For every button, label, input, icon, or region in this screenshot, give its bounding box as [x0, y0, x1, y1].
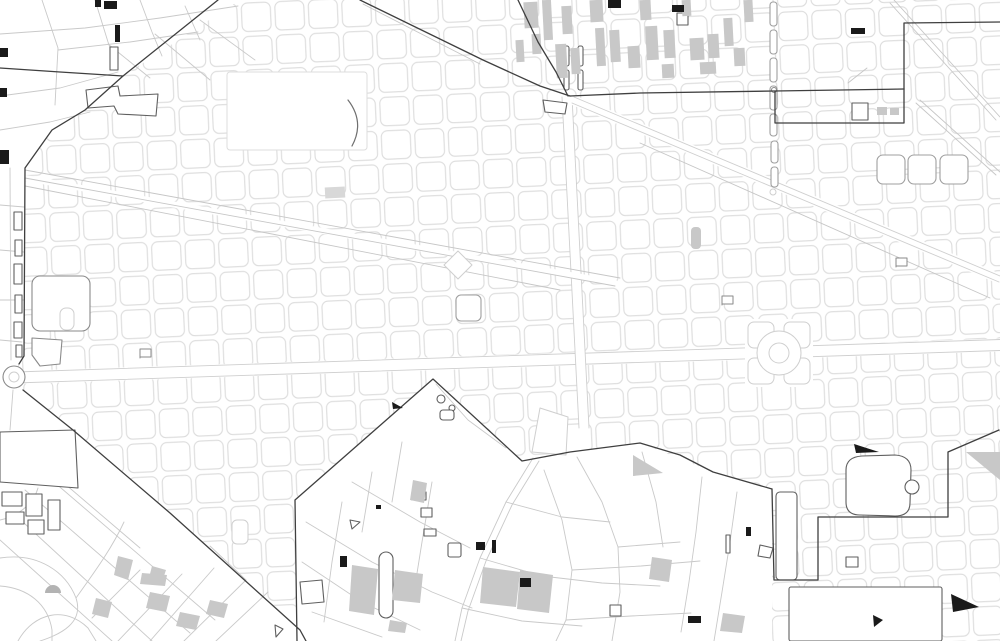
black-building: [0, 48, 8, 57]
filled-block: [570, 48, 580, 74]
campus-building: [440, 410, 454, 420]
filled-block: [531, 34, 541, 54]
market-building: [300, 580, 324, 604]
median-strip: [770, 2, 777, 26]
black-building: [376, 505, 381, 509]
filled-block: [517, 570, 553, 613]
filled-block: [561, 6, 572, 34]
filled-block: [392, 570, 423, 603]
black-building: [476, 542, 485, 550]
campus-building: [437, 395, 445, 403]
flag-marker: [140, 349, 151, 358]
black-building: [608, 0, 621, 8]
building-row: [15, 295, 22, 313]
filled-block: [140, 573, 167, 586]
roundabout-inner-ring: [769, 343, 789, 363]
angled-block: [32, 338, 62, 366]
outlined-building: [610, 605, 621, 616]
outlined-block: [877, 155, 905, 184]
filled-block: [349, 565, 378, 615]
black-building: [95, 0, 101, 7]
fairground-hall: [2, 492, 22, 506]
filled-block: [480, 567, 520, 607]
black-building: [104, 1, 117, 9]
filled-block: [734, 48, 746, 67]
filled-block: [743, 0, 753, 22]
filled-block: [890, 108, 899, 115]
monument-building: [852, 103, 868, 120]
filled-block: [700, 62, 717, 75]
filled-block: [410, 480, 427, 503]
filled-block: [639, 0, 651, 20]
black-building: [340, 556, 347, 567]
building-row: [16, 345, 22, 357]
station-hall: [776, 492, 797, 580]
black-building: [520, 578, 531, 587]
filled-block: [691, 227, 701, 249]
outlined-building: [424, 529, 436, 536]
building-row: [14, 212, 22, 230]
black-building: [492, 540, 496, 553]
median-strip: [771, 167, 778, 187]
filled-block: [663, 30, 675, 59]
narrow-building: [110, 47, 118, 70]
outlined-building: [758, 545, 773, 558]
large-yard: [789, 587, 942, 641]
park-blob: [846, 455, 911, 516]
filled-block: [649, 557, 672, 582]
outlined-block: [908, 155, 936, 184]
filled-block: [720, 613, 745, 633]
black-building: [746, 527, 751, 536]
outlined-building: [846, 557, 858, 567]
fairground-hall: [6, 512, 24, 524]
black-building: [688, 616, 701, 623]
building-row: [14, 322, 22, 338]
rambla-pill: [379, 552, 393, 618]
outlined-building: [543, 100, 567, 114]
filled-block: [645, 26, 659, 61]
roundabout-inner-ring: [9, 372, 19, 382]
narrow-building: [726, 535, 730, 553]
fairground-hall: [48, 500, 60, 530]
map-viewport[interactable]: [0, 0, 1000, 641]
building-row: [15, 240, 22, 256]
filled-block: [662, 64, 675, 79]
black-building: [851, 28, 865, 34]
district-zone: [227, 72, 367, 150]
mini-roundabout: [770, 189, 776, 195]
block-inner-court: [232, 520, 248, 544]
fairground-hall: [26, 494, 42, 516]
mini-roundabout: [772, 88, 777, 93]
building-row: [14, 264, 22, 284]
fairground-hall: [28, 520, 44, 534]
filled-block: [707, 34, 719, 59]
filled-block: [609, 30, 621, 62]
filled-block: [689, 38, 704, 61]
black-building: [115, 25, 120, 42]
outlined-building: [421, 508, 432, 517]
city-map-canvas[interactable]: [0, 0, 1000, 641]
filled-block: [627, 46, 640, 69]
outlined-building: [448, 543, 461, 557]
median-strip: [770, 114, 777, 136]
fairground-hall: [0, 430, 78, 488]
median-strip: [771, 141, 778, 163]
flag-marker: [722, 296, 733, 305]
median-strip: [770, 58, 777, 82]
filled-block: [325, 186, 346, 198]
black-building: [672, 5, 684, 12]
filled-block: [515, 40, 524, 62]
filled-block: [723, 18, 733, 46]
outlined-block: [940, 155, 968, 184]
black-building: [0, 150, 9, 164]
flag-marker: [896, 258, 907, 267]
filled-block: [877, 107, 887, 115]
black-building: [0, 88, 7, 97]
median-strip: [770, 30, 777, 54]
park-circle: [905, 480, 919, 494]
outlined-block: [456, 295, 481, 321]
block-inner-court: [60, 308, 74, 330]
filled-block: [589, 0, 603, 22]
